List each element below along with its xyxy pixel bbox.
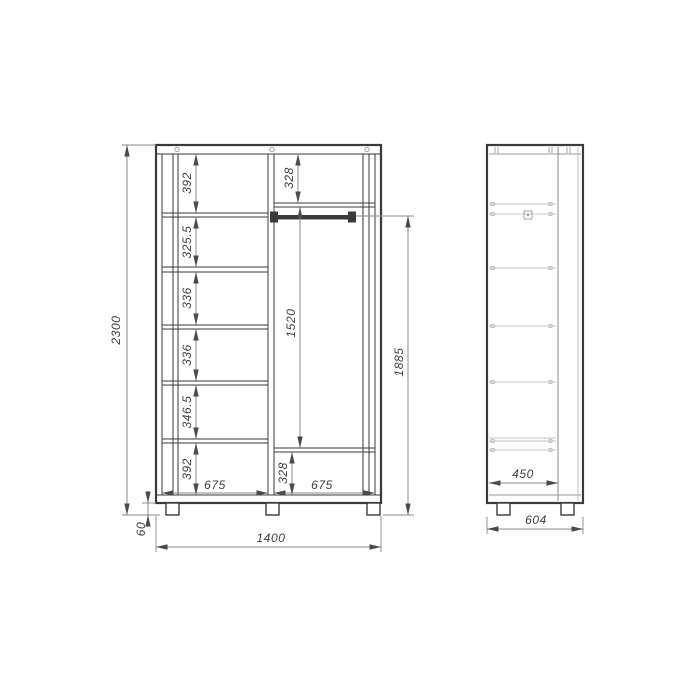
dim-usable-depth-label: 450 bbox=[512, 467, 534, 481]
dim-compartment-label: 392 bbox=[180, 172, 194, 194]
dim-right-width-label: 675 bbox=[311, 478, 333, 492]
dim-compartment-label: 325.5 bbox=[180, 225, 194, 258]
dim-left-width-label: 675 bbox=[204, 478, 226, 492]
rod-end-cap-left bbox=[270, 212, 278, 223]
dim-compartment-label: 336 bbox=[180, 287, 194, 309]
dim-overall-depth-label: 604 bbox=[525, 513, 547, 527]
dim-bottom-space-label: 328 bbox=[276, 462, 290, 484]
leg bbox=[367, 503, 380, 515]
dim-compartment-label: 346.5 bbox=[180, 395, 194, 428]
dim-overall-width-label: 1400 bbox=[256, 531, 285, 545]
side-carcass-outline bbox=[487, 145, 583, 503]
dim-extension bbox=[122, 145, 160, 515]
rod-bracket-screw bbox=[527, 214, 529, 216]
hanging-rod bbox=[277, 215, 349, 220]
rod-end-cap-right bbox=[348, 212, 356, 223]
leg bbox=[166, 503, 179, 515]
dim-hanging-label: 1520 bbox=[284, 308, 298, 337]
dim-compartment-label: 392 bbox=[180, 458, 194, 480]
leg bbox=[266, 503, 279, 515]
leg bbox=[497, 503, 510, 515]
dim-compartment-label: 336 bbox=[180, 344, 194, 366]
dim-rod-floor-label: 1885 bbox=[392, 347, 406, 376]
dim-top-shelf-label: 328 bbox=[282, 167, 296, 189]
dim-base-label: 60 bbox=[134, 522, 148, 537]
dim-overall-height-label: 2300 bbox=[109, 315, 123, 345]
side-view bbox=[487, 145, 583, 515]
leg bbox=[561, 503, 574, 515]
technical-drawing: 2300 60 392 325.5 336 336 346.5 392 328 … bbox=[0, 0, 700, 700]
